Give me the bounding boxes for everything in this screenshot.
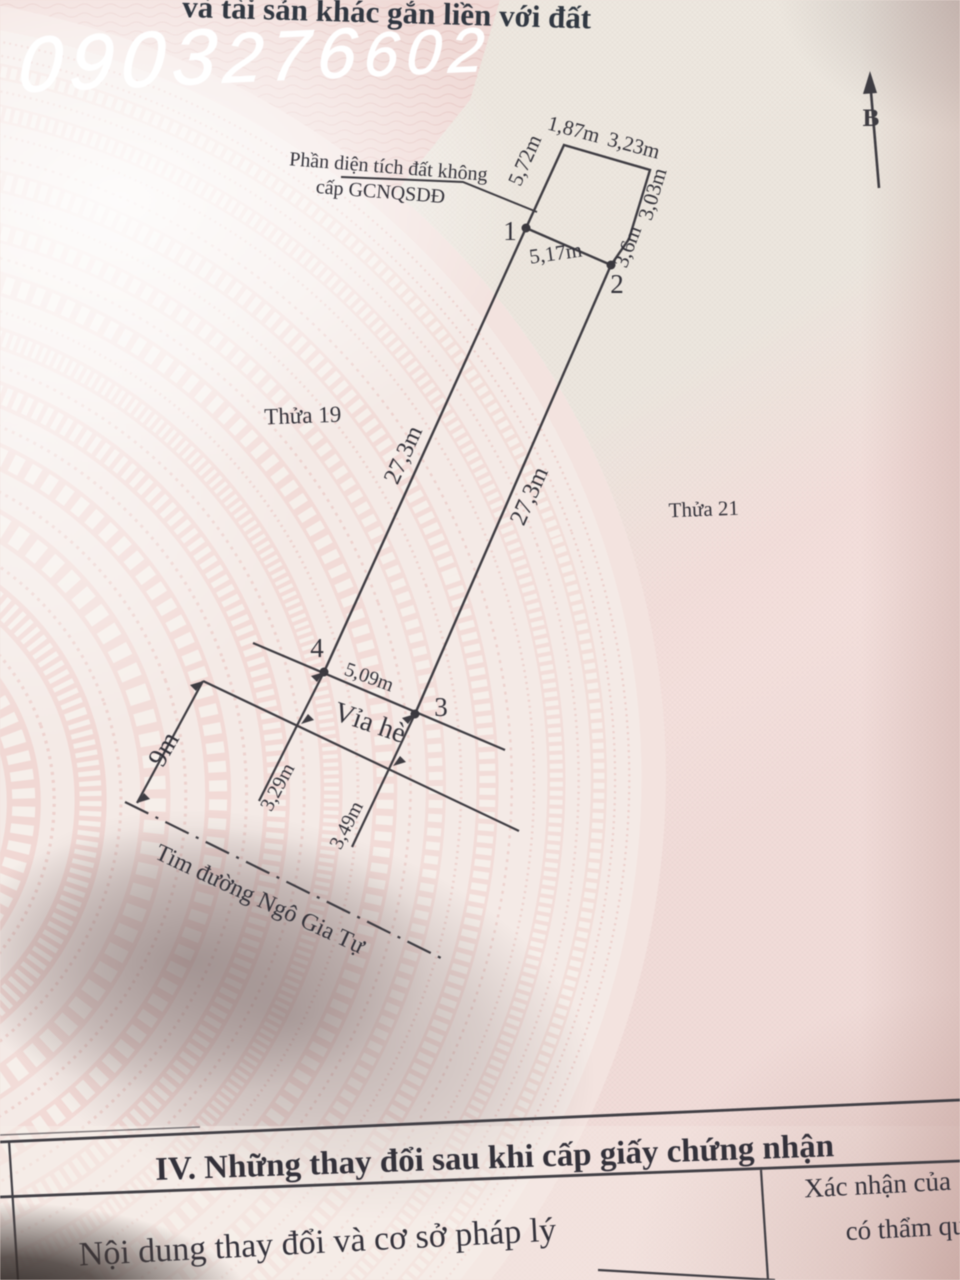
svg-text:Thửa 19: Thửa 19 <box>264 402 342 430</box>
svg-text:Thửa 21: Thửa 21 <box>668 496 739 522</box>
svg-text:2: 2 <box>610 269 624 299</box>
svg-text:B: B <box>863 105 880 132</box>
svg-text:có thẩm qu: có thẩm qu <box>845 1210 960 1246</box>
svg-text:3: 3 <box>434 692 448 722</box>
svg-text:1: 1 <box>503 216 517 246</box>
svg-text:4: 4 <box>310 633 324 663</box>
